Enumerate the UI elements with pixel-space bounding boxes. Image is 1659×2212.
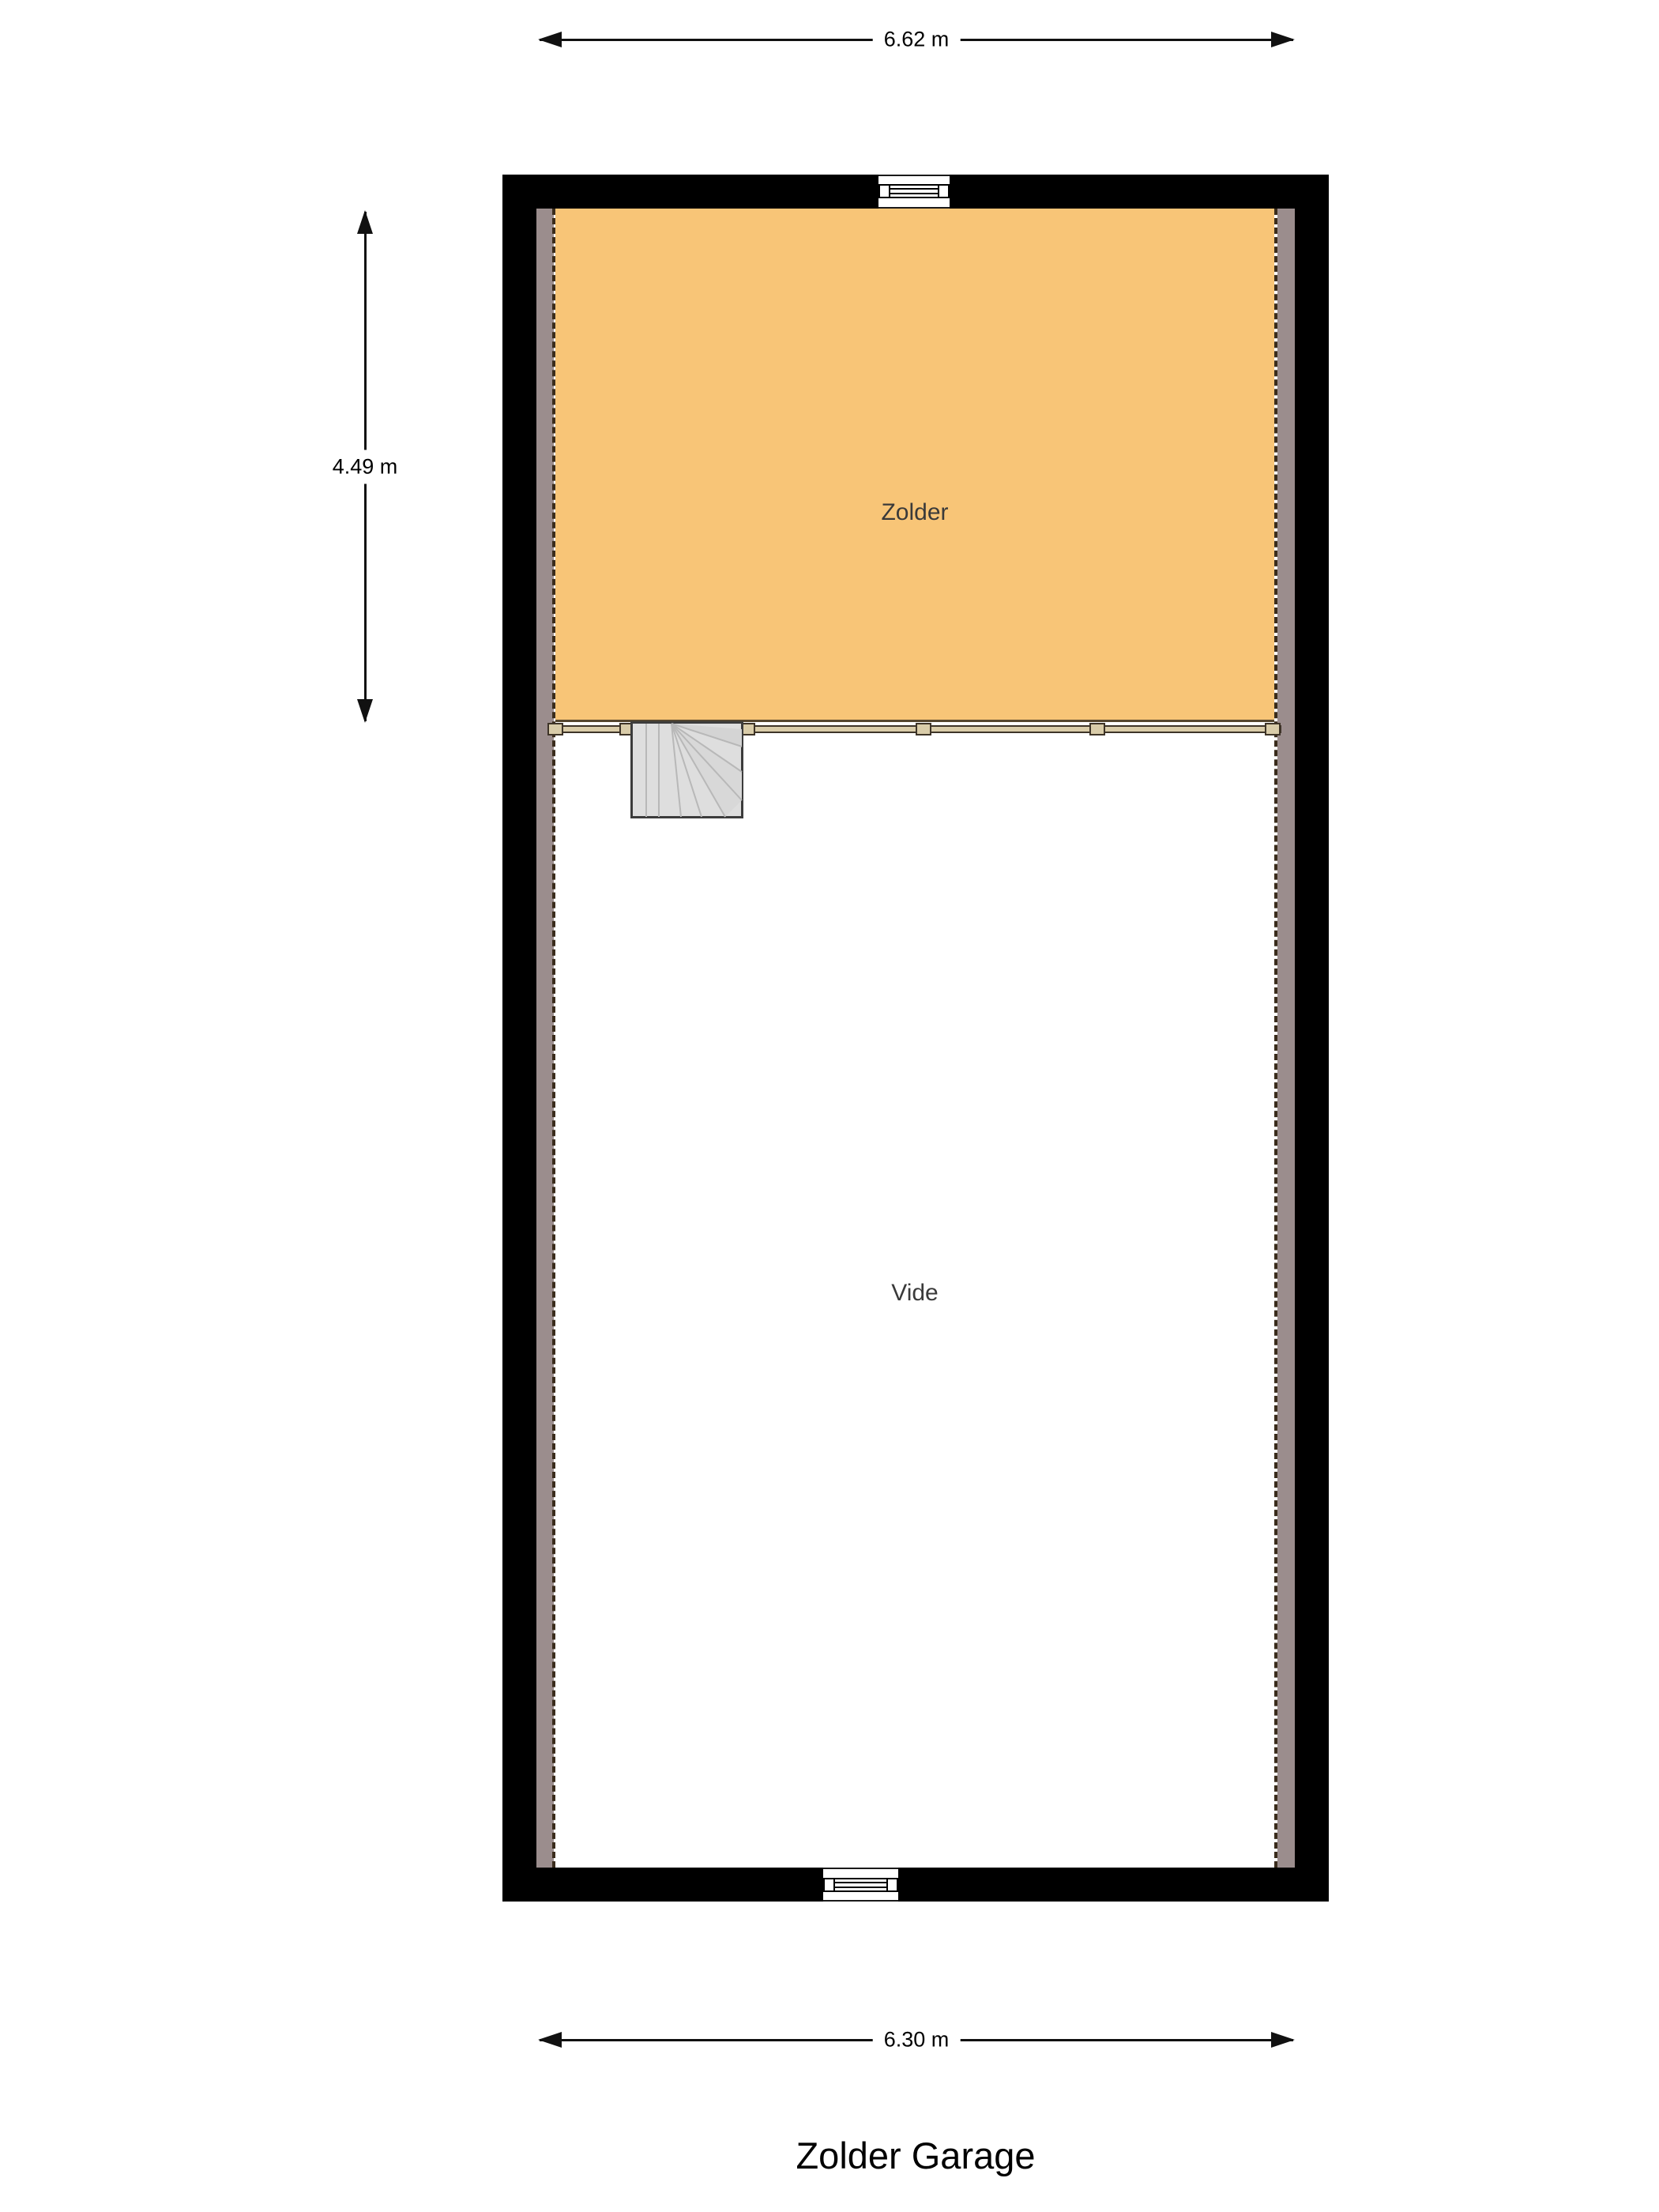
window-face-line: [823, 1900, 898, 1902]
dashed-headroom-line-right: [1274, 209, 1277, 1868]
arrowhead-left-icon: [538, 2032, 562, 2048]
window-frame-cap: [886, 1879, 897, 1890]
railing-post: [1265, 723, 1281, 735]
lowroof-strip-left: [536, 209, 554, 1868]
floorplan-title: Zolder Garage: [502, 2137, 1329, 2174]
window-panes: [890, 186, 938, 197]
dimension-left-label: 4.49 m: [322, 450, 409, 483]
window-glazing: [823, 1878, 898, 1892]
room-zolder: [555, 209, 1274, 722]
window-frame-cap: [880, 186, 890, 197]
outer-wall-bottom: [502, 1868, 1329, 1902]
spiral-staircase: [630, 721, 743, 818]
arrowhead-down-icon: [357, 699, 373, 723]
window-face-line: [823, 1868, 898, 1869]
window-glazing: [878, 184, 950, 198]
railing-post: [547, 723, 563, 735]
room-label-zolder: Zolder: [555, 501, 1274, 525]
outer-wall-right: [1295, 175, 1329, 1902]
railing-segment-right: [743, 725, 1281, 733]
arrowhead-right-icon: [1271, 2032, 1295, 2048]
arrowhead-left-icon: [538, 32, 562, 47]
window-bottom: [823, 1868, 898, 1902]
floorplan-canvas: 6.62 m 4.49 m 6.30 m Zolder Vide: [0, 0, 1659, 2212]
arrowhead-right-icon: [1271, 32, 1295, 47]
railing-post: [916, 723, 931, 735]
window-frame-cap: [825, 1879, 835, 1890]
window-panes: [835, 1879, 886, 1890]
window-top: [878, 175, 950, 209]
window-frame-cap: [938, 186, 948, 197]
window-face-line: [878, 175, 950, 176]
dimension-bottom-label: 6.30 m: [873, 2023, 961, 2057]
window-face-line: [878, 207, 950, 209]
dimension-top-label: 6.62 m: [873, 23, 961, 57]
outer-wall-left: [502, 175, 536, 1902]
arrowhead-up-icon: [357, 210, 373, 234]
railing-post: [1089, 723, 1105, 735]
lowroof-strip-right: [1277, 209, 1295, 1868]
room-label-vide: Vide: [555, 1281, 1274, 1305]
